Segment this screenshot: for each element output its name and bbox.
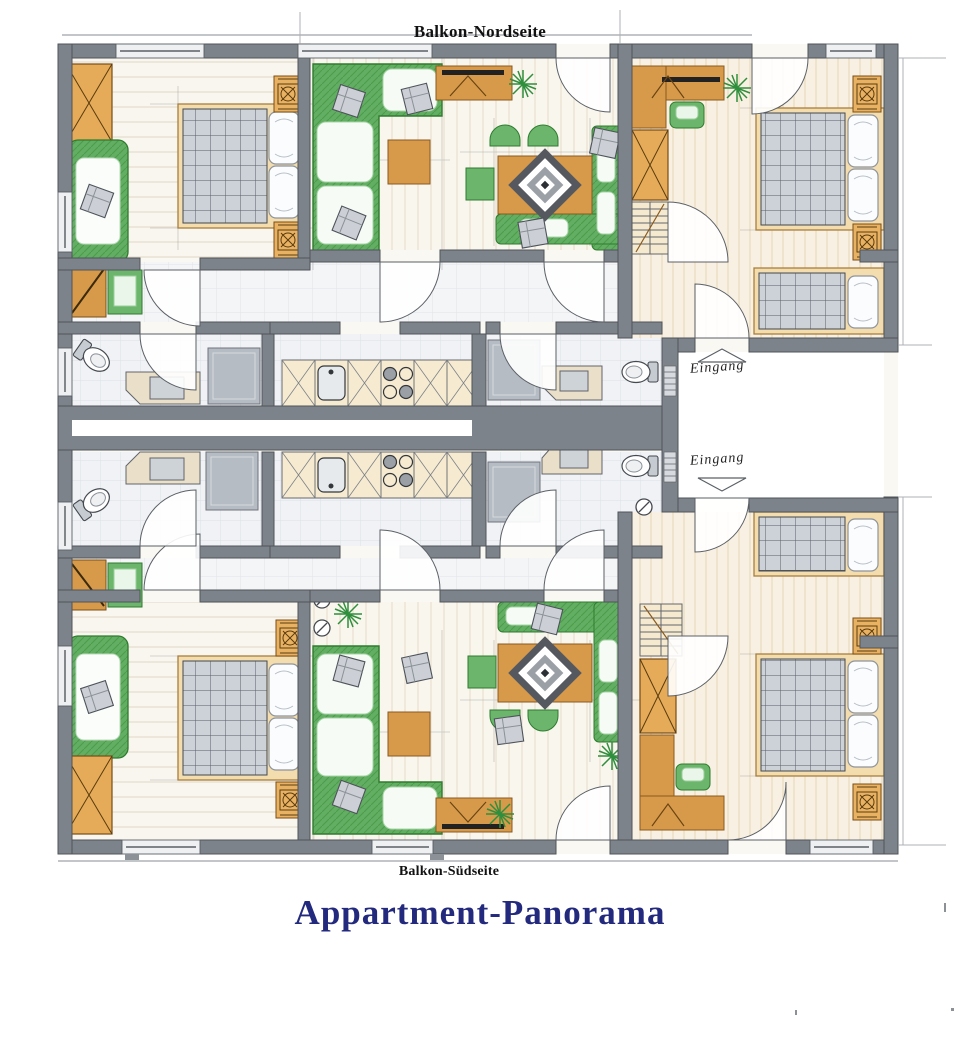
shower [208,348,260,404]
stairs-ne [632,202,668,254]
plant [509,70,537,98]
toilet [622,456,658,477]
page-title: Appartment-Panorama [0,893,960,933]
double-bed-sw [178,656,302,780]
sofa-nw [68,140,128,262]
railing-ticks [125,854,954,1015]
drain-symbol [636,499,652,515]
central-wall-gap [72,420,472,436]
plant [723,74,751,102]
balcony-north-label: Balkon-Nordseite [0,22,960,42]
scanned-floor-plan-page: Balkon-Nordseite Balkon-Südseite Appartm… [0,0,960,1038]
nightstand [853,76,881,112]
sideboard-tv-north [436,66,512,100]
wardrobe-sw [66,756,112,834]
hall-bench-sw [70,560,142,610]
drain-symbol [314,620,330,636]
shower [206,452,258,510]
coffee-table-south [388,712,430,756]
kitchenette-south [282,452,480,498]
coffee-table-north [388,140,430,184]
plant [486,800,514,828]
sofa-sw [68,636,128,758]
balcony-south-label: Balkon-Südseite [399,864,499,880]
plant [334,600,362,628]
floor-plan-drawing [0,0,960,1038]
wardrobe-ne [632,130,668,200]
wardrobe-nw [66,64,112,142]
double-bed-ne [756,108,884,230]
toilet [622,362,658,383]
double-bed-nw [178,104,302,228]
single-bed-se [754,512,884,576]
kitchenette-north [282,360,480,406]
nightstand [853,784,881,820]
double-bed-se [756,654,884,776]
hall-bench-nw [70,265,142,317]
single-bed-ne [754,268,884,334]
